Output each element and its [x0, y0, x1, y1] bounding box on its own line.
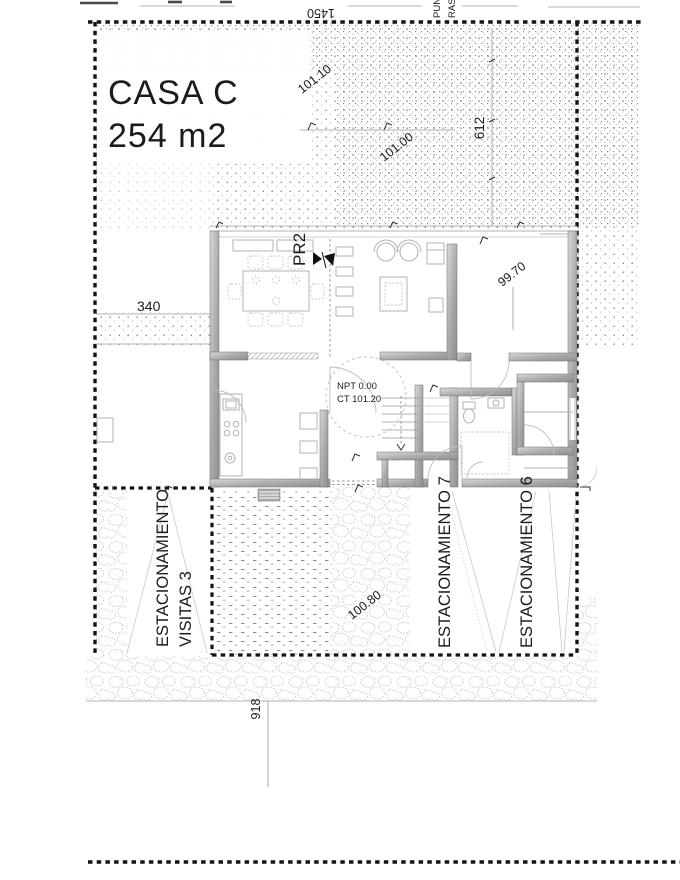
dining-table — [243, 271, 309, 311]
dim-top-label: 1450 — [307, 6, 335, 20]
parking-visitas-line1: ESTACIONAMIENTO — [154, 489, 172, 647]
driveway-paving — [214, 490, 332, 655]
coffee-table — [380, 277, 407, 311]
floor-plan-drawing: CASA C 254 m2 1450 PUN RASA 101.10 101.0… — [0, 0, 680, 880]
dim-bottom-label: 918 — [249, 699, 263, 720]
point-ref-label: PR2 — [290, 233, 309, 266]
level-note-line1: NPT 0.00 — [337, 381, 377, 392]
level-note-line2: CT 101.20 — [337, 394, 381, 405]
road-lines — [80, 2, 640, 7]
parking-space7-label: ESTACIONAMIENTO 7 — [436, 476, 454, 648]
grill — [258, 489, 280, 501]
boundary-label-pun: PUN — [432, 0, 443, 18]
parking-space6-label: ESTACIONAMIENTO 6 — [518, 476, 536, 648]
level-99-70-label: 99.70 — [495, 259, 528, 289]
parking-visitas-line2: VISITAS 3 — [177, 571, 195, 647]
dim-left-label: 340 — [137, 298, 161, 314]
stair-direction-arrow — [397, 444, 405, 450]
floor-plan-canvas: CASA C 254 m2 1450 PUN RASA 101.10 101.0… — [0, 0, 680, 880]
plan-title-label: CASA C — [108, 74, 239, 112]
toilet — [464, 409, 475, 423]
boundary-label-rasa: RASA — [447, 0, 458, 18]
garden-stipple-area — [95, 23, 640, 345]
dim-right-label: 612 — [472, 117, 487, 140]
house-walls — [210, 222, 590, 491]
plan-area-label: 254 m2 — [108, 117, 227, 155]
pr2-flag-symbol — [313, 252, 335, 268]
